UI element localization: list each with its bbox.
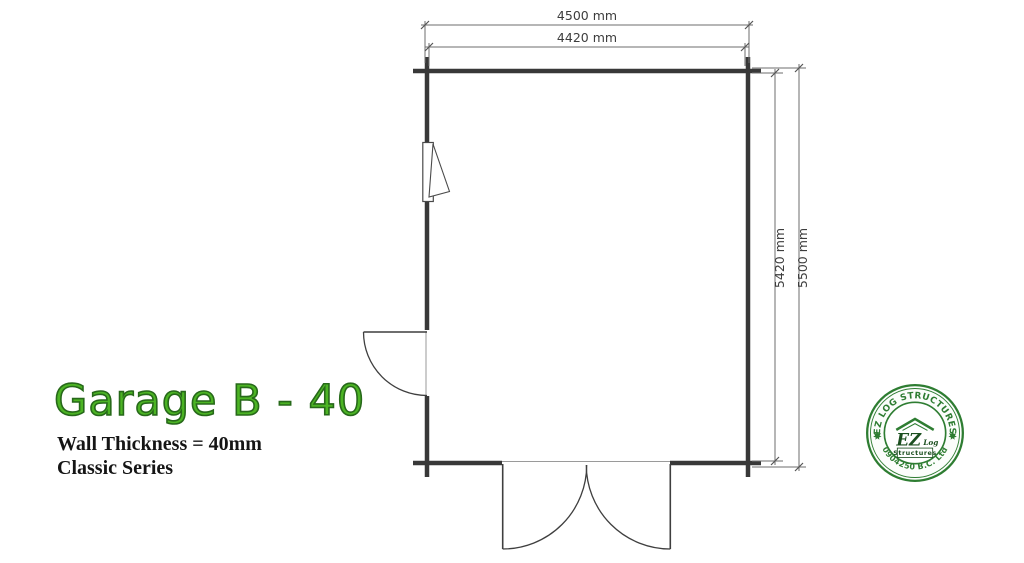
- dim-label-inner-width: 4420 mm: [557, 30, 617, 45]
- window: [423, 143, 450, 202]
- window-swing: [429, 144, 450, 197]
- logo-log-text: Log: [922, 438, 938, 447]
- garage-door-right-swing-arc: [586, 465, 670, 549]
- page-title: Garage B - 40: [54, 376, 365, 426]
- wall-thickness-label: Wall Thickness = 40mm: [57, 433, 262, 456]
- dim-label-outer-width: 4500 mm: [557, 8, 617, 23]
- entry-door: [364, 331, 428, 396]
- series-label: Classic Series: [57, 457, 173, 480]
- garage-double-door: [502, 462, 670, 550]
- garage-door-left-swing-arc: [503, 465, 587, 549]
- logo-ez-text: EZ: [895, 429, 922, 449]
- dim-label-inner-height: 5420 mm: [772, 228, 787, 288]
- dim-label-outer-height: 5500 mm: [795, 228, 810, 288]
- logo-structures-text: Structures: [893, 449, 937, 457]
- dimension-ticks: [421, 21, 803, 471]
- entry-door-swing-arc: [364, 332, 428, 396]
- company-stamp: EZ LOG STRUCTURES 0904250 B.C. Ltd EZ Lo…: [863, 381, 967, 485]
- walls: [413, 57, 761, 477]
- page: 4500 mm 4420 mm 5420 mm 5500 mm Garage B…: [0, 0, 1024, 563]
